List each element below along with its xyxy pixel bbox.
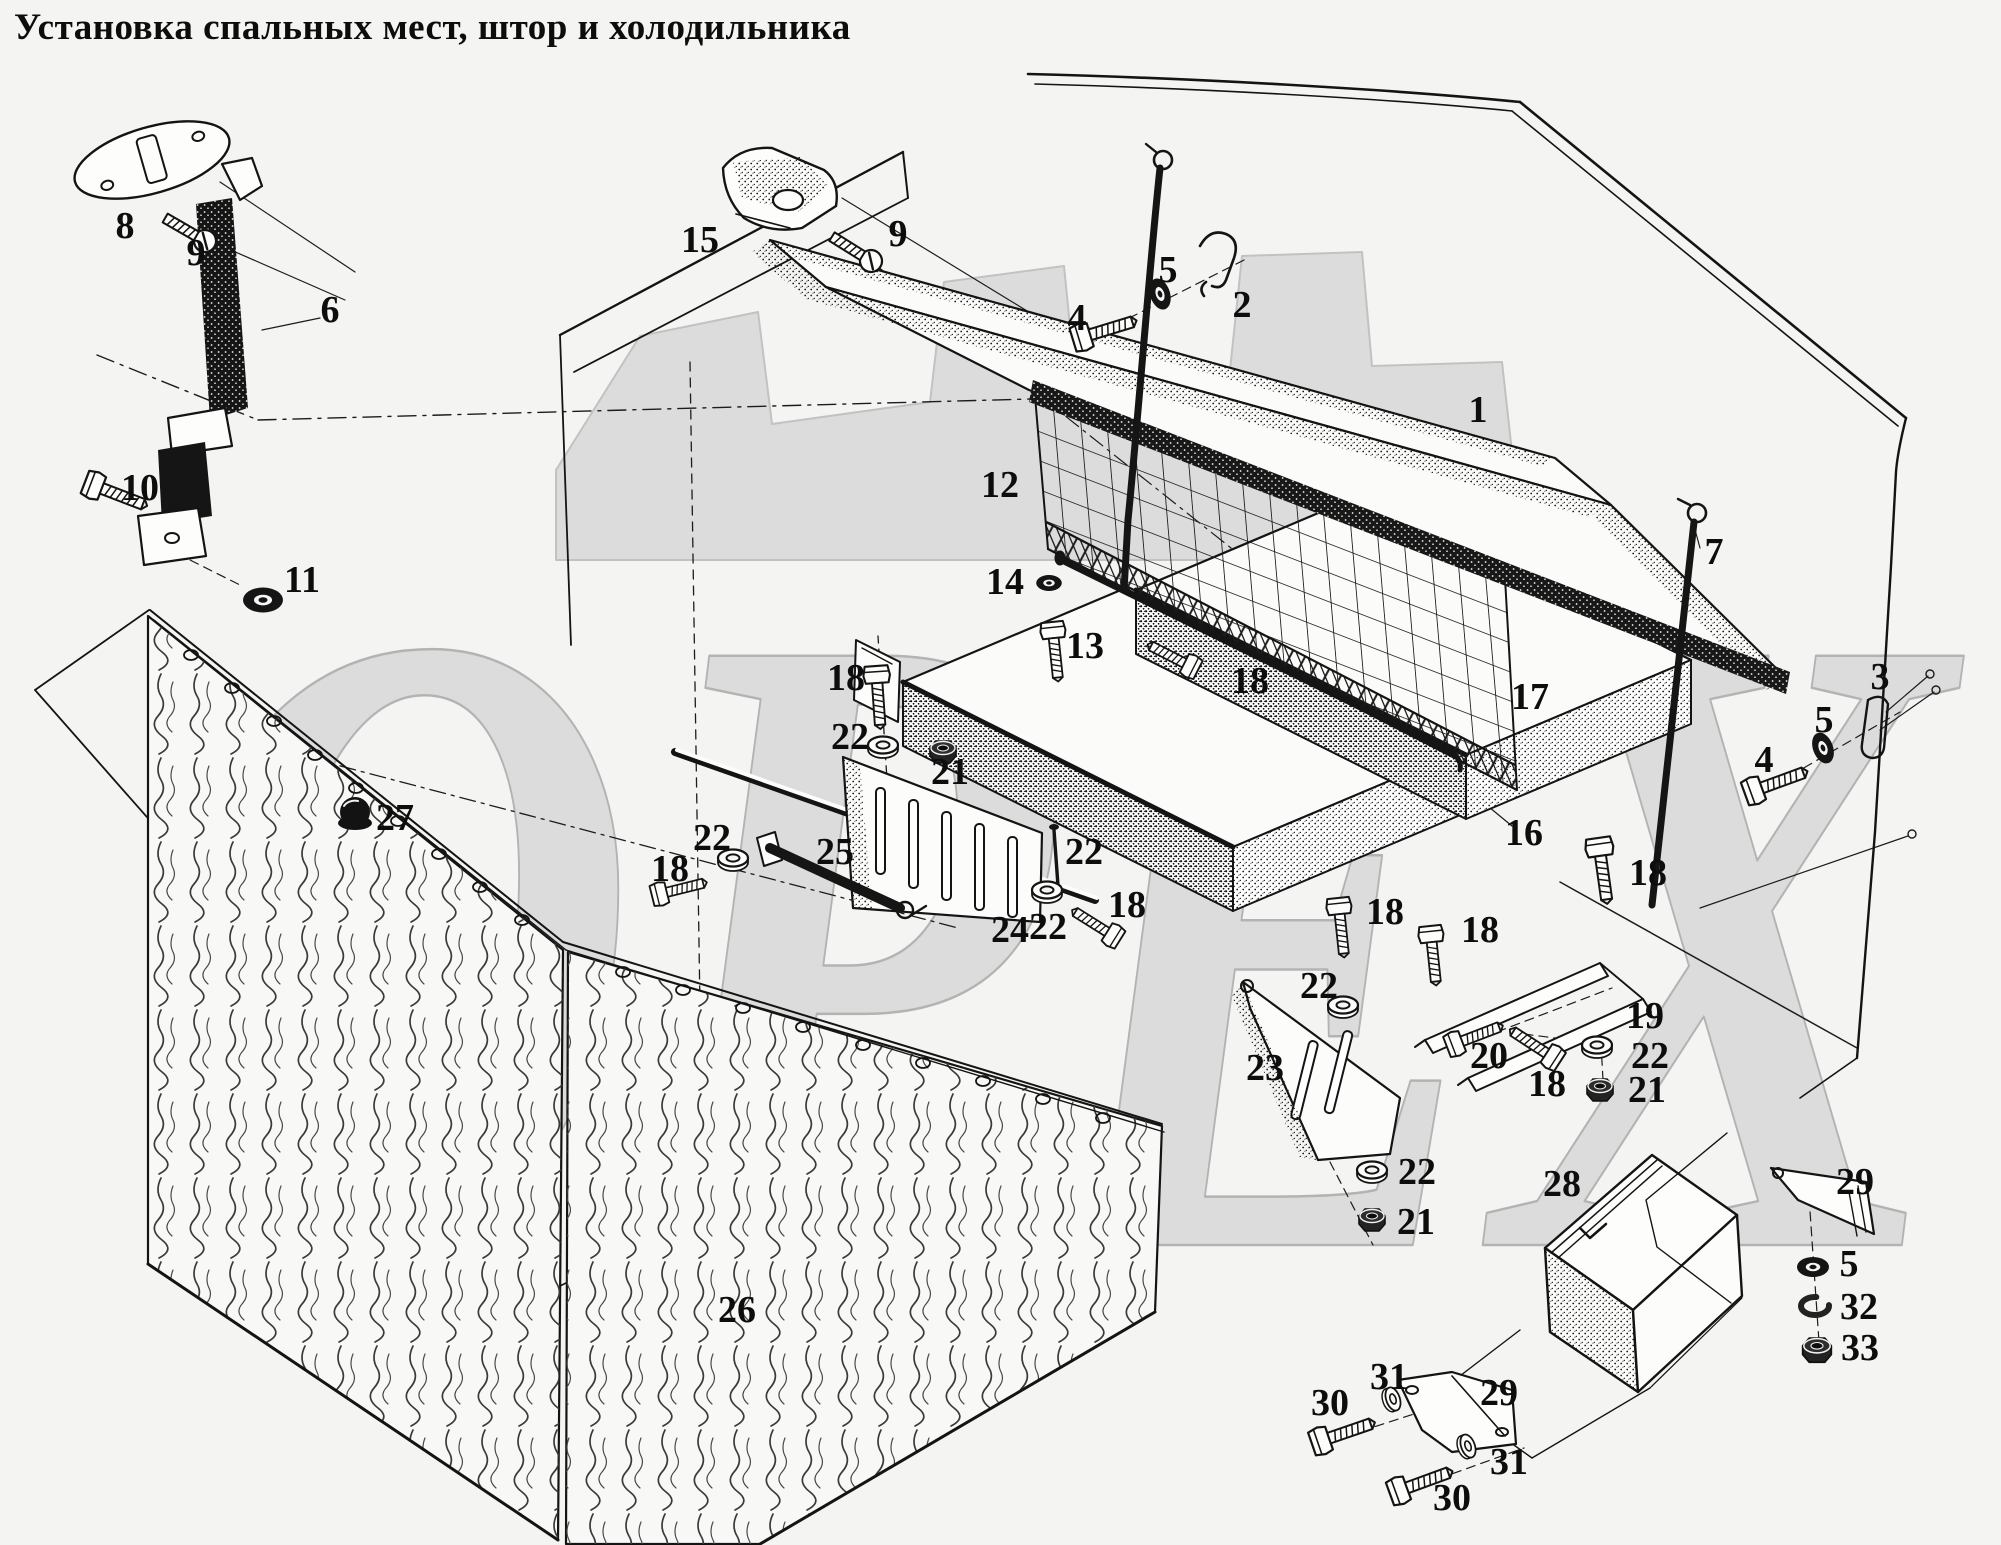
part-label-30: 30 [1311,1382,1349,1424]
bracket-15 [723,148,837,230]
part-label-1: 1 [1469,389,1488,431]
part-label-22: 22 [1300,965,1338,1007]
part-label-21: 21 [931,751,969,793]
part-label-18: 18 [1108,884,1146,926]
grommet-14 [1036,575,1062,591]
part-label-28: 28 [1543,1163,1581,1205]
part-label-14: 14 [986,561,1024,603]
part-label-2: 2 [1233,284,1252,326]
part-label-19: 19 [1626,995,1664,1037]
exploded-diagram: ОРЕХ [0,0,2001,1545]
part-label-22: 22 [1029,906,1067,948]
washer-22f [1357,1162,1387,1184]
part-label-18: 18 [827,657,865,699]
part-label-30: 30 [1433,1477,1471,1519]
grommet-11 [243,588,283,613]
mount-plate-8 [66,106,238,214]
part-label-5: 5 [1815,699,1834,741]
part-label-22: 22 [1398,1151,1436,1193]
washer-22a [868,737,898,759]
washer-22d [1582,1037,1612,1059]
part-label-29: 29 [1480,1372,1518,1414]
part-label-21: 21 [1397,1201,1435,1243]
part-label-9: 9 [889,213,908,255]
part-label-13: 13 [1066,625,1104,667]
part-label-23: 23 [1246,1047,1284,1089]
part-label-10: 10 [121,467,159,509]
part-label-17: 17 [1511,676,1549,718]
part-label-26: 26 [718,1289,756,1331]
part-label-6: 6 [321,289,340,331]
washer-22c [1032,882,1062,904]
part-label-22: 22 [1065,831,1103,873]
hook-2 [1200,233,1236,297]
parts-catalog-page: Установка спальных мест, штор и холодиль… [0,0,2001,1545]
part-label-3: 3 [1871,656,1890,698]
nut-21b [1587,1079,1613,1101]
part-label-4: 4 [1068,297,1087,339]
part-label-12: 12 [981,464,1019,506]
part-label-5: 5 [1840,1243,1859,1285]
part-label-15: 15 [681,219,719,261]
part-label-16: 16 [1505,812,1543,854]
part-label-21: 21 [1628,1069,1666,1111]
page-title: Установка спальных мест, штор и холодиль… [14,6,851,49]
part-label-18: 18 [1231,660,1269,702]
part-label-18: 18 [651,848,689,890]
part-label-9: 9 [187,232,206,274]
part-label-24: 24 [991,909,1029,951]
part-label-11: 11 [284,559,320,601]
part-label-31: 31 [1370,1356,1408,1398]
part-label-32: 32 [1840,1286,1878,1328]
part-label-22: 22 [693,817,731,859]
part-label-8: 8 [116,205,135,247]
part-label-20: 20 [1470,1035,1508,1077]
part-label-18: 18 [1528,1063,1566,1105]
part-label-29: 29 [1836,1161,1874,1203]
part-label-31: 31 [1490,1441,1528,1483]
grommet-5c [1797,1257,1829,1277]
part-label-18: 18 [1629,852,1667,894]
part-label-4: 4 [1755,739,1774,781]
part-label-25: 25 [816,831,854,873]
part-label-5: 5 [1159,249,1178,291]
part-label-33: 33 [1841,1327,1879,1369]
part-label-7: 7 [1705,531,1724,573]
part-label-22: 22 [831,716,869,758]
nut-33 [1803,1338,1832,1362]
part-label-27: 27 [376,797,414,839]
nut-21c [1359,1209,1385,1231]
part-label-18: 18 [1366,891,1404,933]
part-label-18: 18 [1461,909,1499,951]
